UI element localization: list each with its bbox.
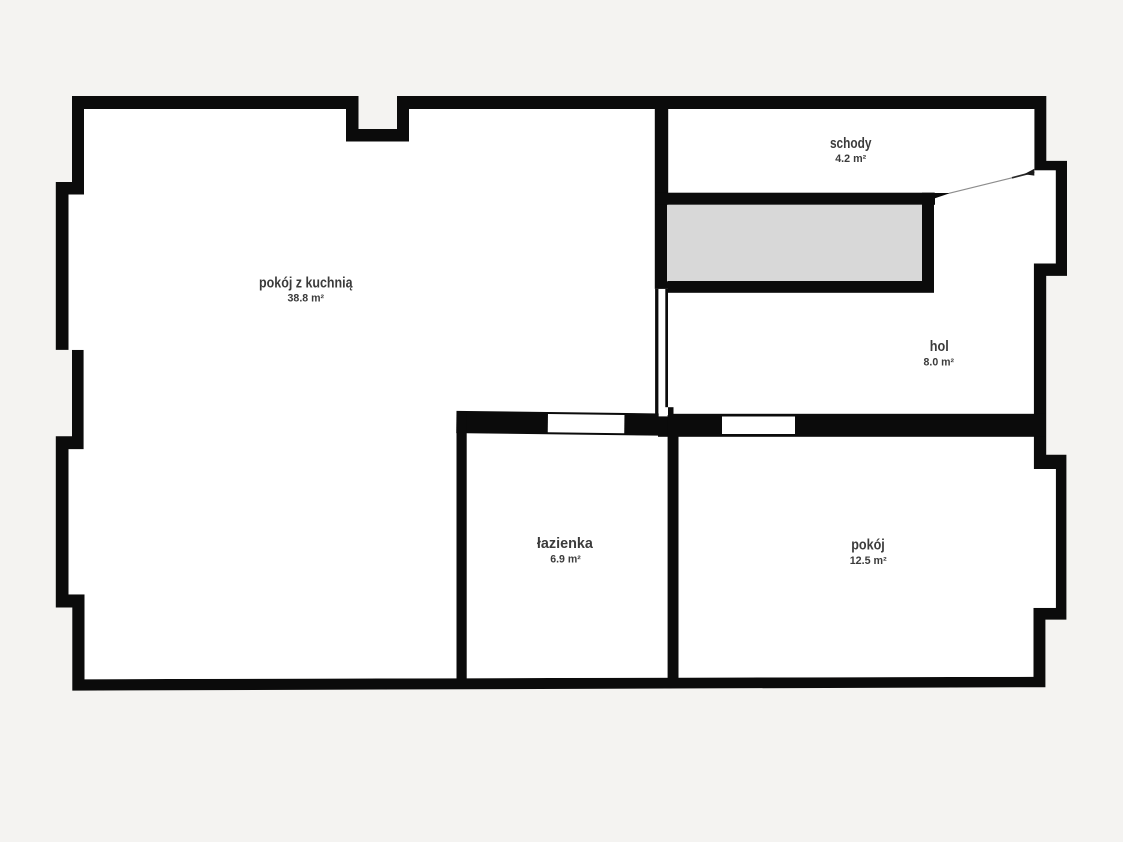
svg-text:4.2 m²: 4.2 m²	[835, 153, 866, 165]
svg-text:hol: hol	[930, 338, 949, 355]
svg-text:pokój z kuchnią: pokój z kuchnią	[259, 274, 353, 291]
svg-text:łazienka: łazienka	[537, 535, 594, 552]
svg-text:pokój: pokój	[851, 536, 885, 553]
svg-text:38.8 m²: 38.8 m²	[288, 292, 325, 304]
svg-text:schody: schody	[830, 135, 872, 152]
svg-text:8.0 m²: 8.0 m²	[924, 357, 955, 369]
svg-text:6.9 m²: 6.9 m²	[550, 553, 581, 565]
svg-text:12.5 m²: 12.5 m²	[850, 555, 887, 567]
